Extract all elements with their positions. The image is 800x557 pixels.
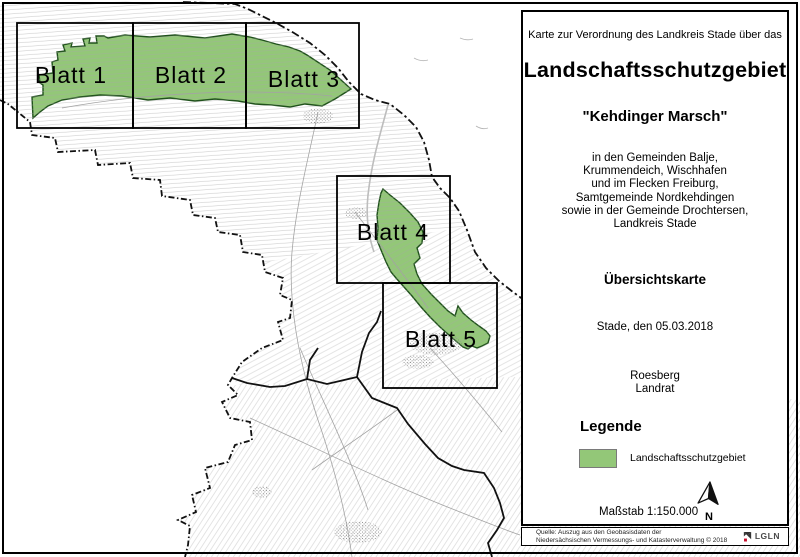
source-line-1: Quelle: Auszug aus den Geobasisdaten der: [536, 529, 727, 537]
date-line: Stade, den 05.03.2018: [523, 321, 787, 333]
legend-item-label: Landschaftsschutzgebiet: [630, 452, 746, 464]
municipality-line: Samtgemeinde Nordkehdingen: [523, 192, 787, 205]
sheet-label-blatt-3: Blatt 3: [268, 66, 340, 92]
sheet-label-blatt-5: Blatt 5: [405, 326, 477, 352]
municipality-line: sowie in der Gemeinde Drochtersen,: [523, 205, 787, 218]
signature-name: Roesberg: [523, 370, 787, 383]
north-label: N: [686, 511, 732, 523]
municipality-line: und im Flecken Freiburg,: [523, 178, 787, 191]
sheet-label-blatt-1: Blatt 1: [35, 62, 107, 88]
municipality-line: Krummendeich, Wischhafen: [523, 165, 787, 178]
map-document-page: Blatt 1 Blatt 2 Blatt 3 Blatt 4 Blatt 5 …: [0, 0, 800, 557]
source-line-2: Niedersächsischen Vermessungs- und Katas…: [536, 537, 727, 545]
source-attribution-bar: Quelle: Auszug aus den Geobasisdaten der…: [521, 527, 789, 546]
title-panel: Karte zur Verordnung des Landkreis Stade…: [521, 10, 789, 526]
sheet-label-blatt-4: Blatt 4: [357, 219, 429, 245]
sheet-label-blatt-2: Blatt 2: [155, 62, 227, 88]
municipality-line: in den Gemeinden Balje,: [523, 152, 787, 165]
map-ordinance-intro: Karte zur Verordnung des Landkreis Stade…: [523, 29, 787, 41]
scale-label: Maßstab 1:150.000: [599, 506, 698, 518]
signature-title: Landrat: [523, 383, 787, 396]
map-type-heading: Übersichtskarte: [523, 272, 787, 287]
source-text: Quelle: Auszug aus den Geobasisdaten der…: [536, 529, 727, 544]
legend-heading: Legende: [580, 418, 642, 435]
north-arrow-icon: [686, 481, 732, 506]
legend-swatch-protected-area: [579, 449, 617, 468]
lgln-logo-icon: [742, 531, 753, 543]
municipality-line: Landkreis Stade: [523, 218, 787, 231]
north-arrow: N: [686, 481, 732, 523]
lgln-logo: LGLN: [742, 531, 780, 543]
lgln-logo-text: LGLN: [755, 531, 780, 541]
map-subtitle: "Kehdinger Marsch": [523, 108, 787, 125]
map-title: Landschaftsschutzgebiet: [523, 58, 787, 83]
signature-block: Roesberg Landrat: [523, 370, 787, 396]
municipality-list: in den Gemeinden Balje, Krummendeich, Wi…: [523, 152, 787, 231]
